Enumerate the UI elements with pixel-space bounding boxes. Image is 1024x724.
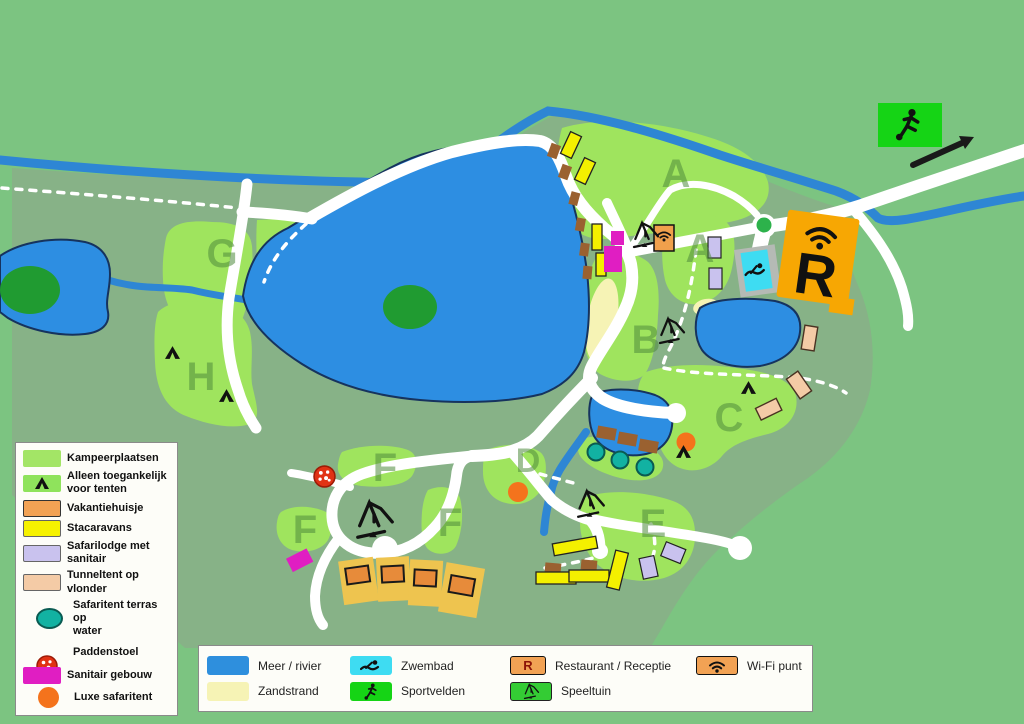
water-safaritent [588,444,605,461]
legend-item-tenten: Alleen toegankelijk voor tenten [23,470,172,496]
cottage [414,569,437,586]
legend-item-paddenstoel: Paddenstoel [23,642,172,664]
stacaravan [569,570,609,582]
legend-item-safaritent-water: Safaritent terras op water [23,599,172,639]
west-lake-island [0,266,60,314]
wifi-point [654,225,674,251]
legend-label: Luxe safaritent [74,691,152,704]
legend-panel-left: Kampeerplaatsen Alleen toegankelijk voor… [15,442,178,716]
legend-label: Zandstrand [258,684,319,698]
legend-item-stacaravans: Stacaravans [23,520,172,537]
swimming-pool [734,244,781,297]
restaurant-swatch: R [510,656,546,675]
luxury-safaritent [677,433,696,452]
legend-item-meer-rivier: Meer / rivier [207,653,350,679]
area-label-F3: F [293,508,317,552]
area-label-H: H [187,355,216,399]
legend-label: Alleen toegankelijk voor tenten [67,470,167,496]
legend-item-sanitair: Sanitair gebouw [23,667,172,684]
cottage [448,575,475,596]
sports-field [878,103,942,147]
legend-item-tunneltent: Tunneltent op vlonder [23,569,172,595]
cottage [381,565,404,582]
legend-label: Safaritent terras op water [73,599,172,639]
area-label-F1: F [373,446,397,490]
playground-swatch [510,682,552,701]
legend-item-sportvelden: Sportvelden [350,679,510,705]
legend-label: Sanitair gebouw [67,669,152,682]
dock [582,266,592,280]
legend-label: Stacaravans [67,522,132,535]
area-label-B: B [632,318,661,362]
legend-label: Wi-Fi punt [747,659,802,673]
restaurant-letter: R [790,240,841,310]
orange-circle-swatch [38,687,59,708]
playground-icon [522,683,541,700]
soccer-player-icon [363,683,380,700]
camp-green-swatch [23,450,61,467]
tunneltent [801,325,818,351]
tent-icon [35,477,49,489]
safarilodge [709,268,722,289]
wifi-swatch [696,656,738,675]
water-safaritent [637,459,654,476]
swimmer-icon [360,659,382,673]
yellow-swatch [23,520,61,537]
legend-label: Zwembad [401,659,454,673]
area-label-D: D [516,442,541,480]
legend-item-wifi: Wi-Fi punt [696,653,804,679]
legend-label: Restaurant / Receptie [555,659,671,673]
legend-label: Tunneltent op vlonder [67,569,172,595]
blue-swatch [207,656,249,675]
legend-label: Sportvelden [401,684,465,698]
legend-panel-bottom: Meer / rivier Zwembad R Restaurant / Rec… [198,645,813,712]
area-label-A1: A [662,152,691,196]
c-culdesac [666,403,686,423]
e-culdesac [728,536,752,560]
legend-item-safarilodge: Safarilodge met sanitair [23,540,172,566]
legend-label: Kampeerplaatsen [67,452,159,465]
water-safaritent [612,452,629,469]
sanitary-building [604,246,622,272]
sand-swatch [207,682,249,701]
area-label-F2: F [438,501,462,545]
legend-item-zandstrand: Zandstrand [207,679,350,705]
legend-label: Vakantiehuisje [67,502,143,515]
stacaravan [592,224,602,250]
legend-empty-cell [696,679,804,705]
salmon-swatch [23,574,61,591]
tent-green-swatch [23,475,61,492]
legend-item-kampeerplaatsen: Kampeerplaatsen [23,450,172,467]
legend-label: Meer / rivier [258,659,321,673]
area-label-G: G [206,232,237,276]
mushroom-swatch [36,642,58,664]
teal-ellipse-swatch [36,608,63,629]
main-lake-island [383,285,437,329]
g-connector-road [242,212,312,219]
luxury-safaritent [508,482,528,502]
legend-item-speeltuin: Speeltuin [510,679,696,705]
area-label-E: E [640,502,667,546]
legend-label: Speeltuin [561,684,611,698]
area-label-A2: A [686,227,715,271]
dock [579,243,590,257]
legend-item-zwembad: Zwembad [350,653,510,679]
legend-item-vakantiehuisje: Vakantiehuisje [23,500,172,517]
roundabout-tree [757,218,772,233]
restaurant-letter: R [523,658,532,673]
pool-water [740,249,772,291]
dock [581,559,598,570]
mushroom-marker [314,466,335,487]
wifi-icon [708,659,726,673]
legend-label: Paddenstoel [73,646,138,659]
sanitary-building [611,231,624,245]
legend-item-restaurant: R Restaurant / Receptie [510,653,696,679]
orange-swatch [23,500,61,517]
north-pond [696,299,801,367]
magenta-swatch [23,667,61,684]
sport-swatch [350,682,392,701]
legend-label: Safarilodge met sanitair [67,540,150,566]
cyan-swatch [350,656,392,675]
legend-item-luxe-safaritent: Luxe safaritent [23,687,172,708]
campsite-map-page: R G H A A B C D E F F F [0,0,1024,724]
area-label-C: C [715,396,744,440]
lavender-swatch [23,545,61,562]
cottage [345,565,370,584]
